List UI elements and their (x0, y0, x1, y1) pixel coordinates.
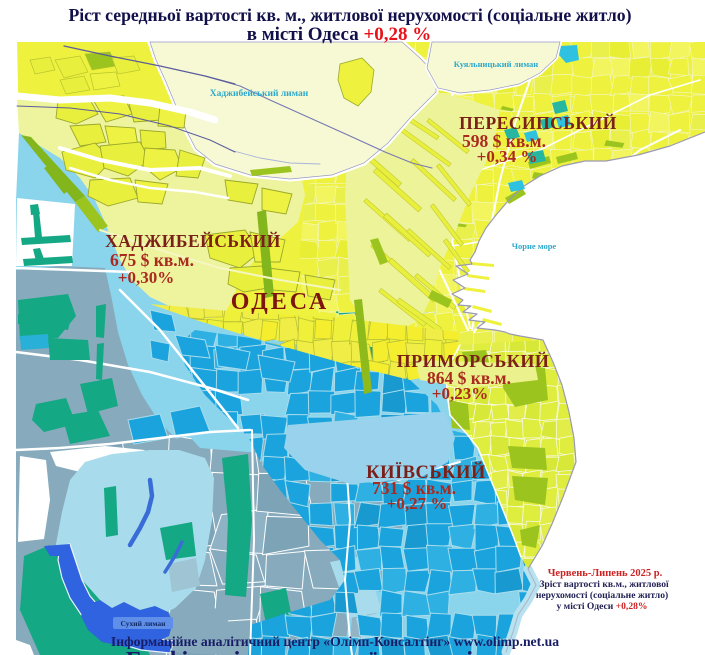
svg-text:+0,27 %: +0,27 % (387, 494, 448, 513)
svg-text:в місті Одеса +0,28 %: в місті Одеса +0,28 % (247, 24, 432, 45)
svg-text:+0,23%: +0,23% (432, 384, 488, 403)
svg-text:Куяльницький лиман: Куяльницький лиман (454, 59, 539, 69)
svg-text:Червень-Липень 2025 р.: Червень-Липень 2025 р. (548, 568, 663, 579)
svg-text:Інформаційне аналітичний центр: Інформаційне аналітичний центр «Олімп-Ко… (111, 634, 559, 649)
svg-text:Зріст вартості кв.м., житлової: Зріст вартості кв.м., житлової (539, 579, 669, 590)
svg-text:+0,34 %: +0,34 % (477, 147, 538, 166)
svg-text:ПЕРЕСИПСЬКИЙ: ПЕРЕСИПСЬКИЙ (459, 113, 617, 133)
svg-text:Хаджибейський лиман: Хаджибейський лиман (210, 88, 309, 99)
svg-text:нерухомості (соціальне житло): нерухомості (соціальне житло) (536, 590, 668, 601)
svg-text:Чорне море: Чорне море (512, 241, 557, 251)
svg-text:+0,30%: +0,30% (118, 268, 174, 287)
svg-text:Графік зміни середньої вартост: Графік зміни середньої вартості кв.м. (126, 648, 535, 655)
svg-text:ХАДЖИБЕЙСЬКИЙ: ХАДЖИБЕЙСЬКИЙ (105, 231, 281, 251)
svg-text:ОДЕСА: ОДЕСА (231, 289, 329, 315)
svg-text:Сухий лиман: Сухий лиман (121, 619, 167, 628)
svg-text:у місті Одеси +0,28%: у місті Одеси +0,28% (556, 601, 647, 612)
svg-text:675 $ кв.м.: 675 $ кв.м. (110, 250, 194, 270)
svg-text:Ріст середньої вартості кв. м.: Ріст середньої вартості кв. м., житлової… (68, 5, 631, 25)
